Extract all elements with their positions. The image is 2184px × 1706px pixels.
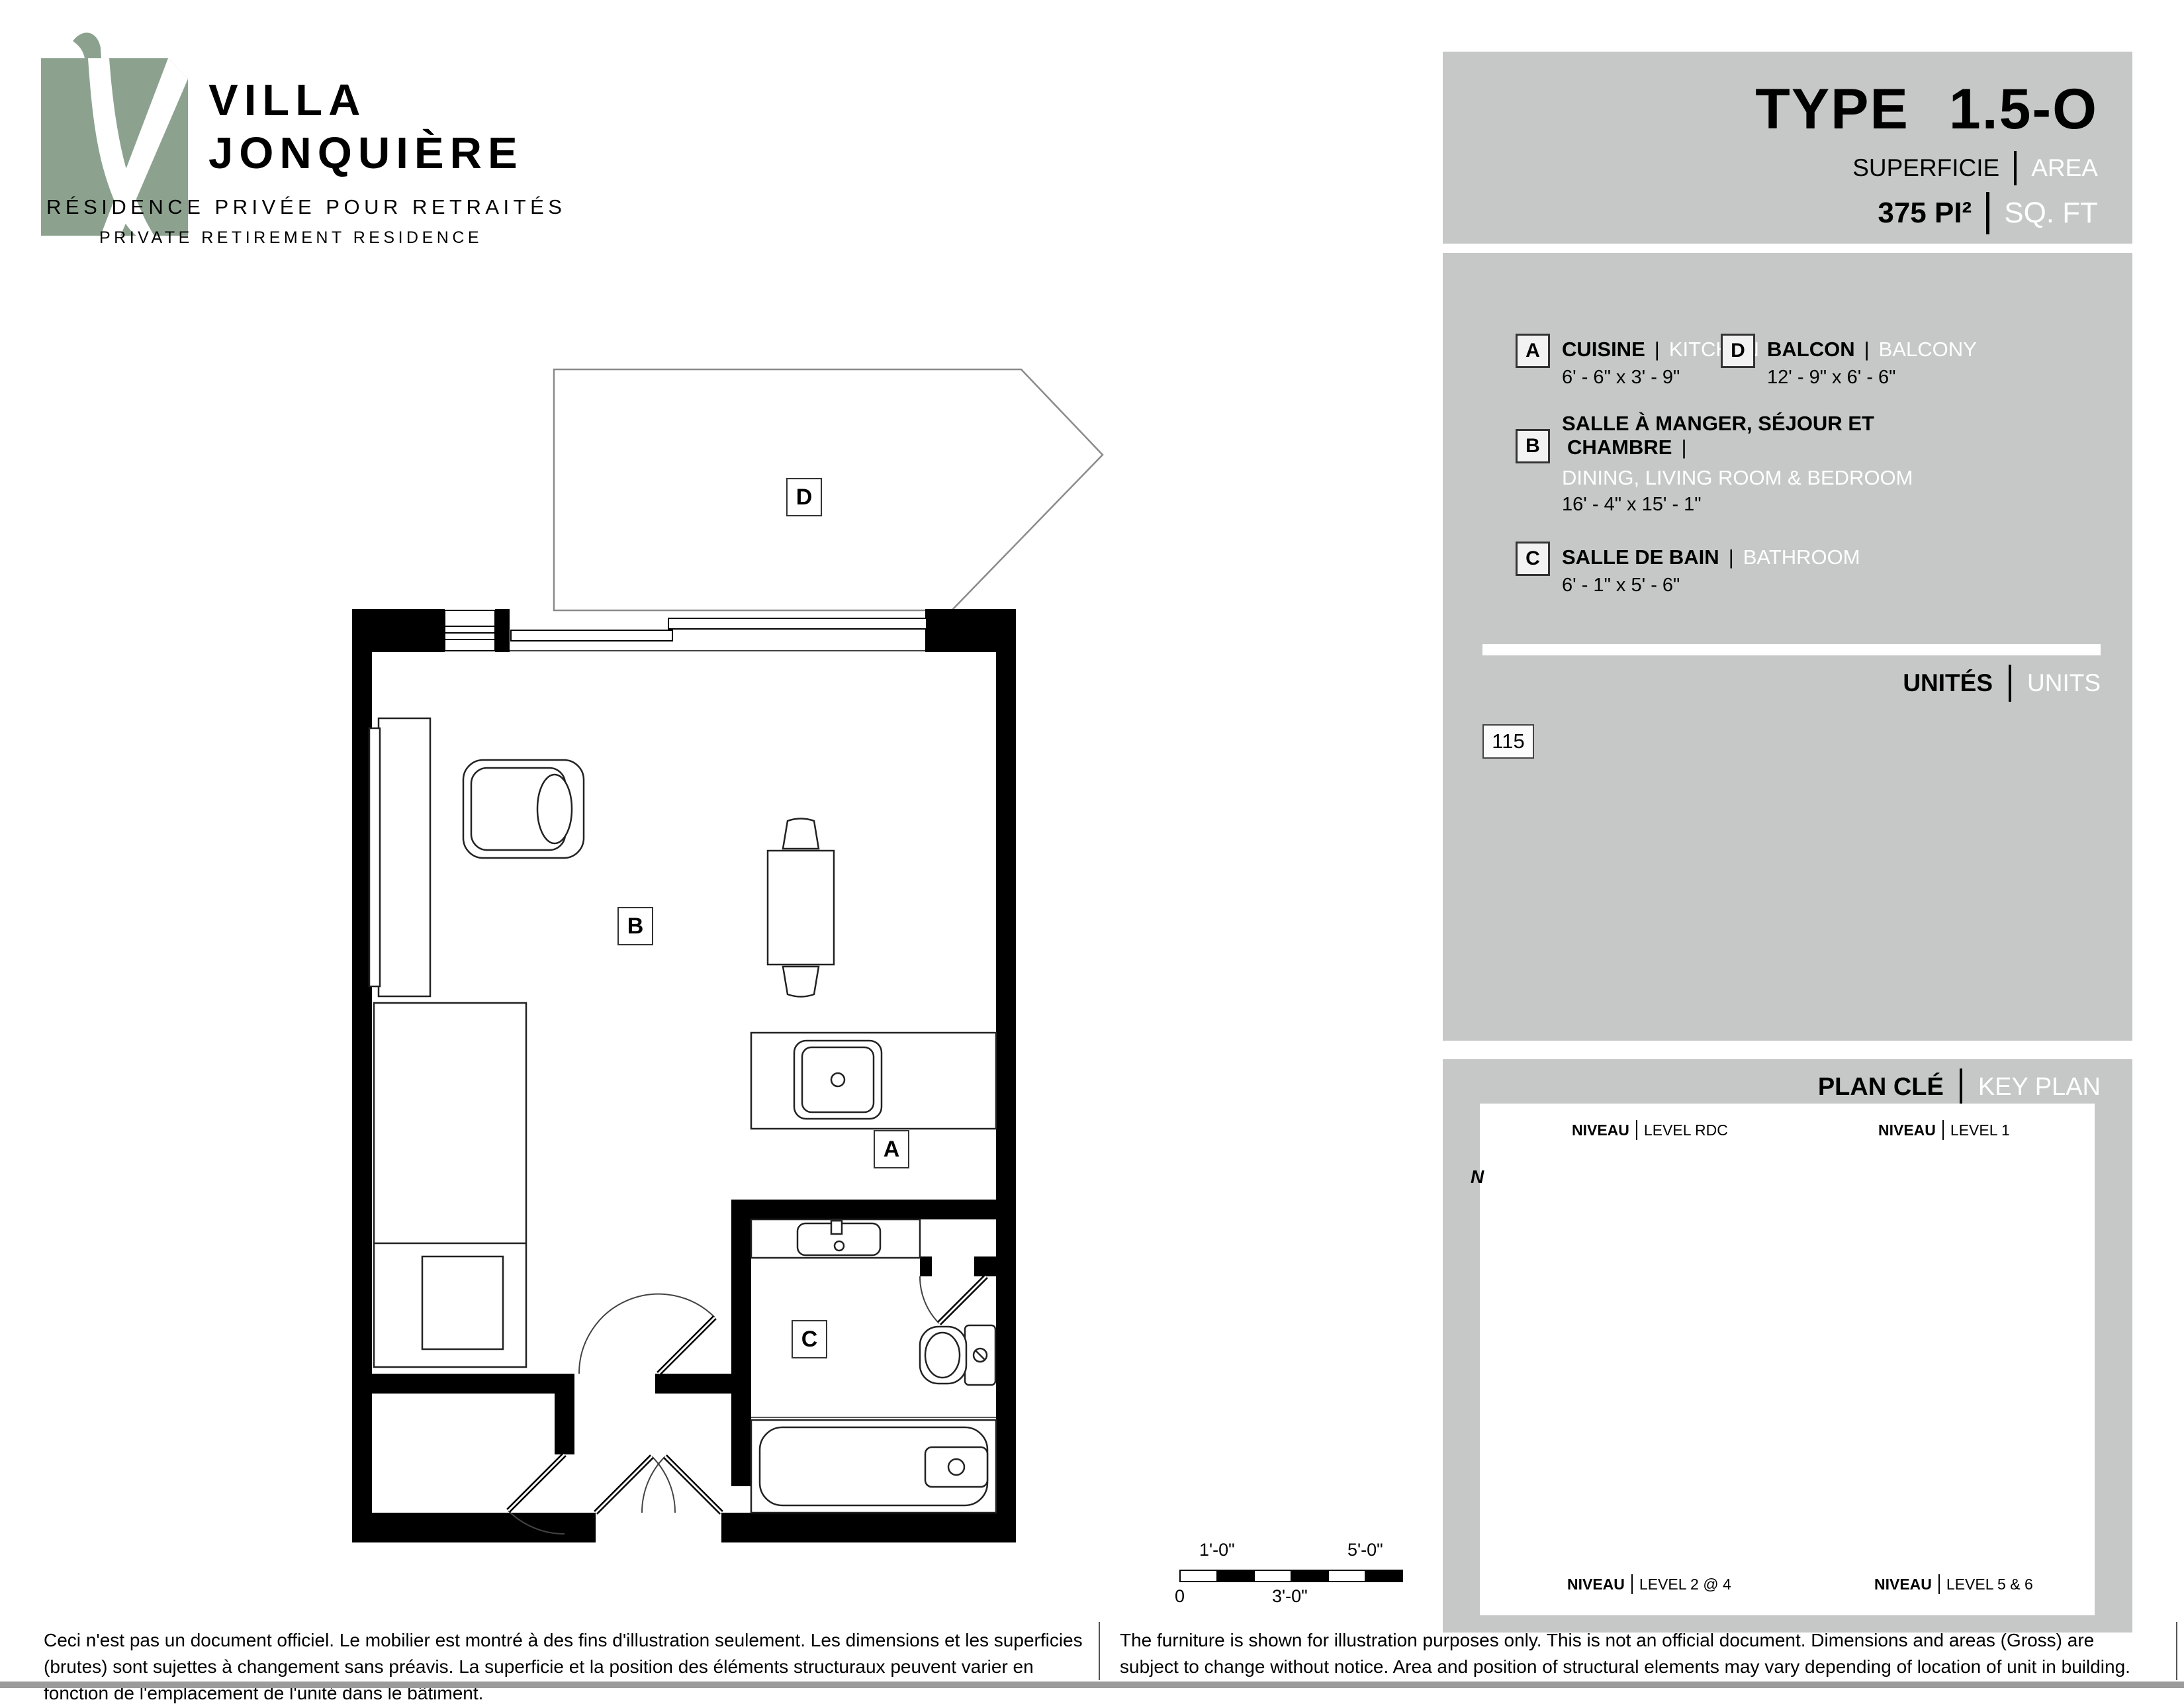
disclaimer-french: Ceci n'est pas un document officiel. Le … (44, 1627, 1083, 1706)
legend-fr-D: BALCON (1767, 338, 1855, 361)
scale-bar (1180, 1570, 1402, 1582)
area-value-fr: 375 PI² (1878, 197, 1972, 230)
logo-tagline-fr: RÉSIDENCE PRIVÉE POUR RETRAITÉS (46, 195, 566, 219)
area-value: 375 PI² SQ. FT (1878, 192, 2098, 234)
legend-title-D: BALCON|BALCONY (1767, 338, 1977, 361)
keyplan-canvas (1480, 1104, 2095, 1615)
legend-dims-D: 12' - 9" x 6' - 6" (1767, 367, 1895, 389)
scale-label-5ft: 5'-0" (1347, 1540, 1383, 1560)
legend-dims-A: 6' - 6" x 3' - 9" (1562, 367, 1680, 389)
divider (1099, 1622, 1100, 1680)
legend-en-C: BATHROOM (1743, 545, 1860, 569)
keyplan-panel: PLAN CLÉ KEY PLAN (1443, 1059, 2132, 1633)
compass-n-label: N (1471, 1166, 1484, 1188)
disclaimer-english: The furniture is shown for illustration … (1120, 1627, 2152, 1680)
units-label-en: UNITS (2027, 669, 2101, 697)
bathtub (751, 1417, 996, 1513)
legend-en-B: DINING, LIVING ROOM & BEDROOM (1562, 466, 1913, 490)
tv-cabinet (369, 718, 430, 996)
legend-fr-B: CHAMBRE (1567, 436, 1672, 459)
kitchen-counter (751, 1033, 996, 1129)
niveau-label: NIVEAU (1567, 1576, 1625, 1593)
scale-label-1ft: 1'-0" (1199, 1540, 1235, 1560)
scale-label-0: 0 (1175, 1586, 1185, 1607)
separator (1986, 192, 1989, 234)
legend-fr-C: SALLE DE BAIN (1562, 545, 1719, 569)
divider (1482, 644, 2101, 655)
area-heading: SUPERFICIE AREA (1852, 151, 2098, 185)
level-label-2-4: NIVEAU LEVEL 2 @ 4 (1567, 1574, 1731, 1594)
legend-key-B: B (1516, 429, 1550, 463)
logo-name-line1: VILLA (208, 78, 367, 122)
unit-number-badge: 115 (1482, 724, 1534, 759)
area-label-en: AREA (2031, 154, 2098, 182)
level-name: LEVEL 2 @ 4 (1639, 1576, 1731, 1593)
bed (374, 1003, 526, 1367)
legend-key-A: A (1516, 334, 1550, 368)
level-name: LEVEL 1 (1950, 1121, 2010, 1139)
separator (2014, 151, 2017, 185)
logo-name-line2: JONQUIÈRE (208, 131, 523, 175)
room-label-kitchen: A (874, 1130, 909, 1168)
logo-tagline-en: PRIVATE RETIREMENT RESIDENCE (99, 228, 482, 248)
legend-en-D: BALCONY (1879, 338, 1977, 361)
legend-key-D: D (1721, 334, 1755, 368)
niveau-label: NIVEAU (1874, 1576, 1932, 1593)
area-value-en: SQ. FT (2004, 197, 2098, 230)
niveau-label: NIVEAU (1878, 1121, 1936, 1139)
legend-title-B-line1: SALLE À MANGER, SÉJOUR ET (1562, 412, 1874, 436)
room-label-balcony: D (786, 478, 822, 516)
dining-table (768, 819, 834, 997)
niveau-label: NIVEAU (1572, 1121, 1629, 1139)
sliding-door (508, 618, 927, 651)
level-name: LEVEL 5 & 6 (1946, 1576, 2033, 1593)
separator (1631, 1574, 1633, 1594)
unit-type-title: TYPE 1.5-O (1755, 77, 2098, 142)
legend-fr-A: CUISINE (1562, 338, 1645, 361)
separator (1636, 1120, 1637, 1140)
level-label-rdc: NIVEAU LEVEL RDC (1572, 1120, 1728, 1140)
window (445, 610, 495, 651)
type-value: 1.5-O (1949, 77, 2098, 142)
floorplan-page: { "logo": { "name_line1": "VILLA", "name… (0, 0, 2184, 1688)
level-label-5-6: NIVEAU LEVEL 5 & 6 (1874, 1574, 2033, 1594)
keyplan-heading: PLAN CLÉ KEY PLAN (1818, 1068, 2101, 1106)
legend-panel: A CUISINE|KITCHEN 6' - 6" x 3' - 9" B SA… (1443, 253, 2132, 1041)
type-label: TYPE (1755, 77, 1909, 142)
separator (1960, 1068, 1962, 1106)
units-heading: UNITÉS UNITS (1903, 665, 2101, 702)
level-label-1: NIVEAU LEVEL 1 (1878, 1120, 2010, 1140)
level-name: LEVEL RDC (1644, 1121, 1728, 1139)
units-label-fr: UNITÉS (1903, 669, 1993, 697)
scale-label-3ft: 3'-0" (1272, 1586, 1308, 1607)
legend-key-C: C (1516, 542, 1550, 576)
keyplan-title-en: KEY PLAN (1978, 1073, 2101, 1102)
toilet (920, 1325, 995, 1385)
legend-title-B-line2: CHAMBRE| (1567, 436, 1696, 459)
legend-dims-B: 16' - 4" x 15' - 1" (1562, 494, 1702, 516)
area-label-fr: SUPERFICIE (1852, 154, 1999, 182)
balcony-outline (554, 369, 1103, 610)
divider (2176, 1622, 2177, 1680)
armchair (463, 760, 584, 858)
room-label-bathroom: C (792, 1320, 827, 1358)
separator (1938, 1574, 1940, 1594)
bathroom-vanity (751, 1219, 920, 1258)
bottom-bar (0, 1682, 2184, 1688)
separator (2009, 665, 2011, 702)
keyplan-title-fr: PLAN CLÉ (1818, 1073, 1944, 1102)
separator (1942, 1120, 1944, 1140)
title-panel: TYPE 1.5-O SUPERFICIE AREA 375 PI² SQ. F… (1443, 52, 2132, 244)
legend-dims-C: 6' - 1" x 5' - 6" (1562, 575, 1680, 596)
legend-title-C: SALLE DE BAIN|BATHROOM (1562, 545, 1860, 569)
room-label-living: B (617, 907, 653, 945)
